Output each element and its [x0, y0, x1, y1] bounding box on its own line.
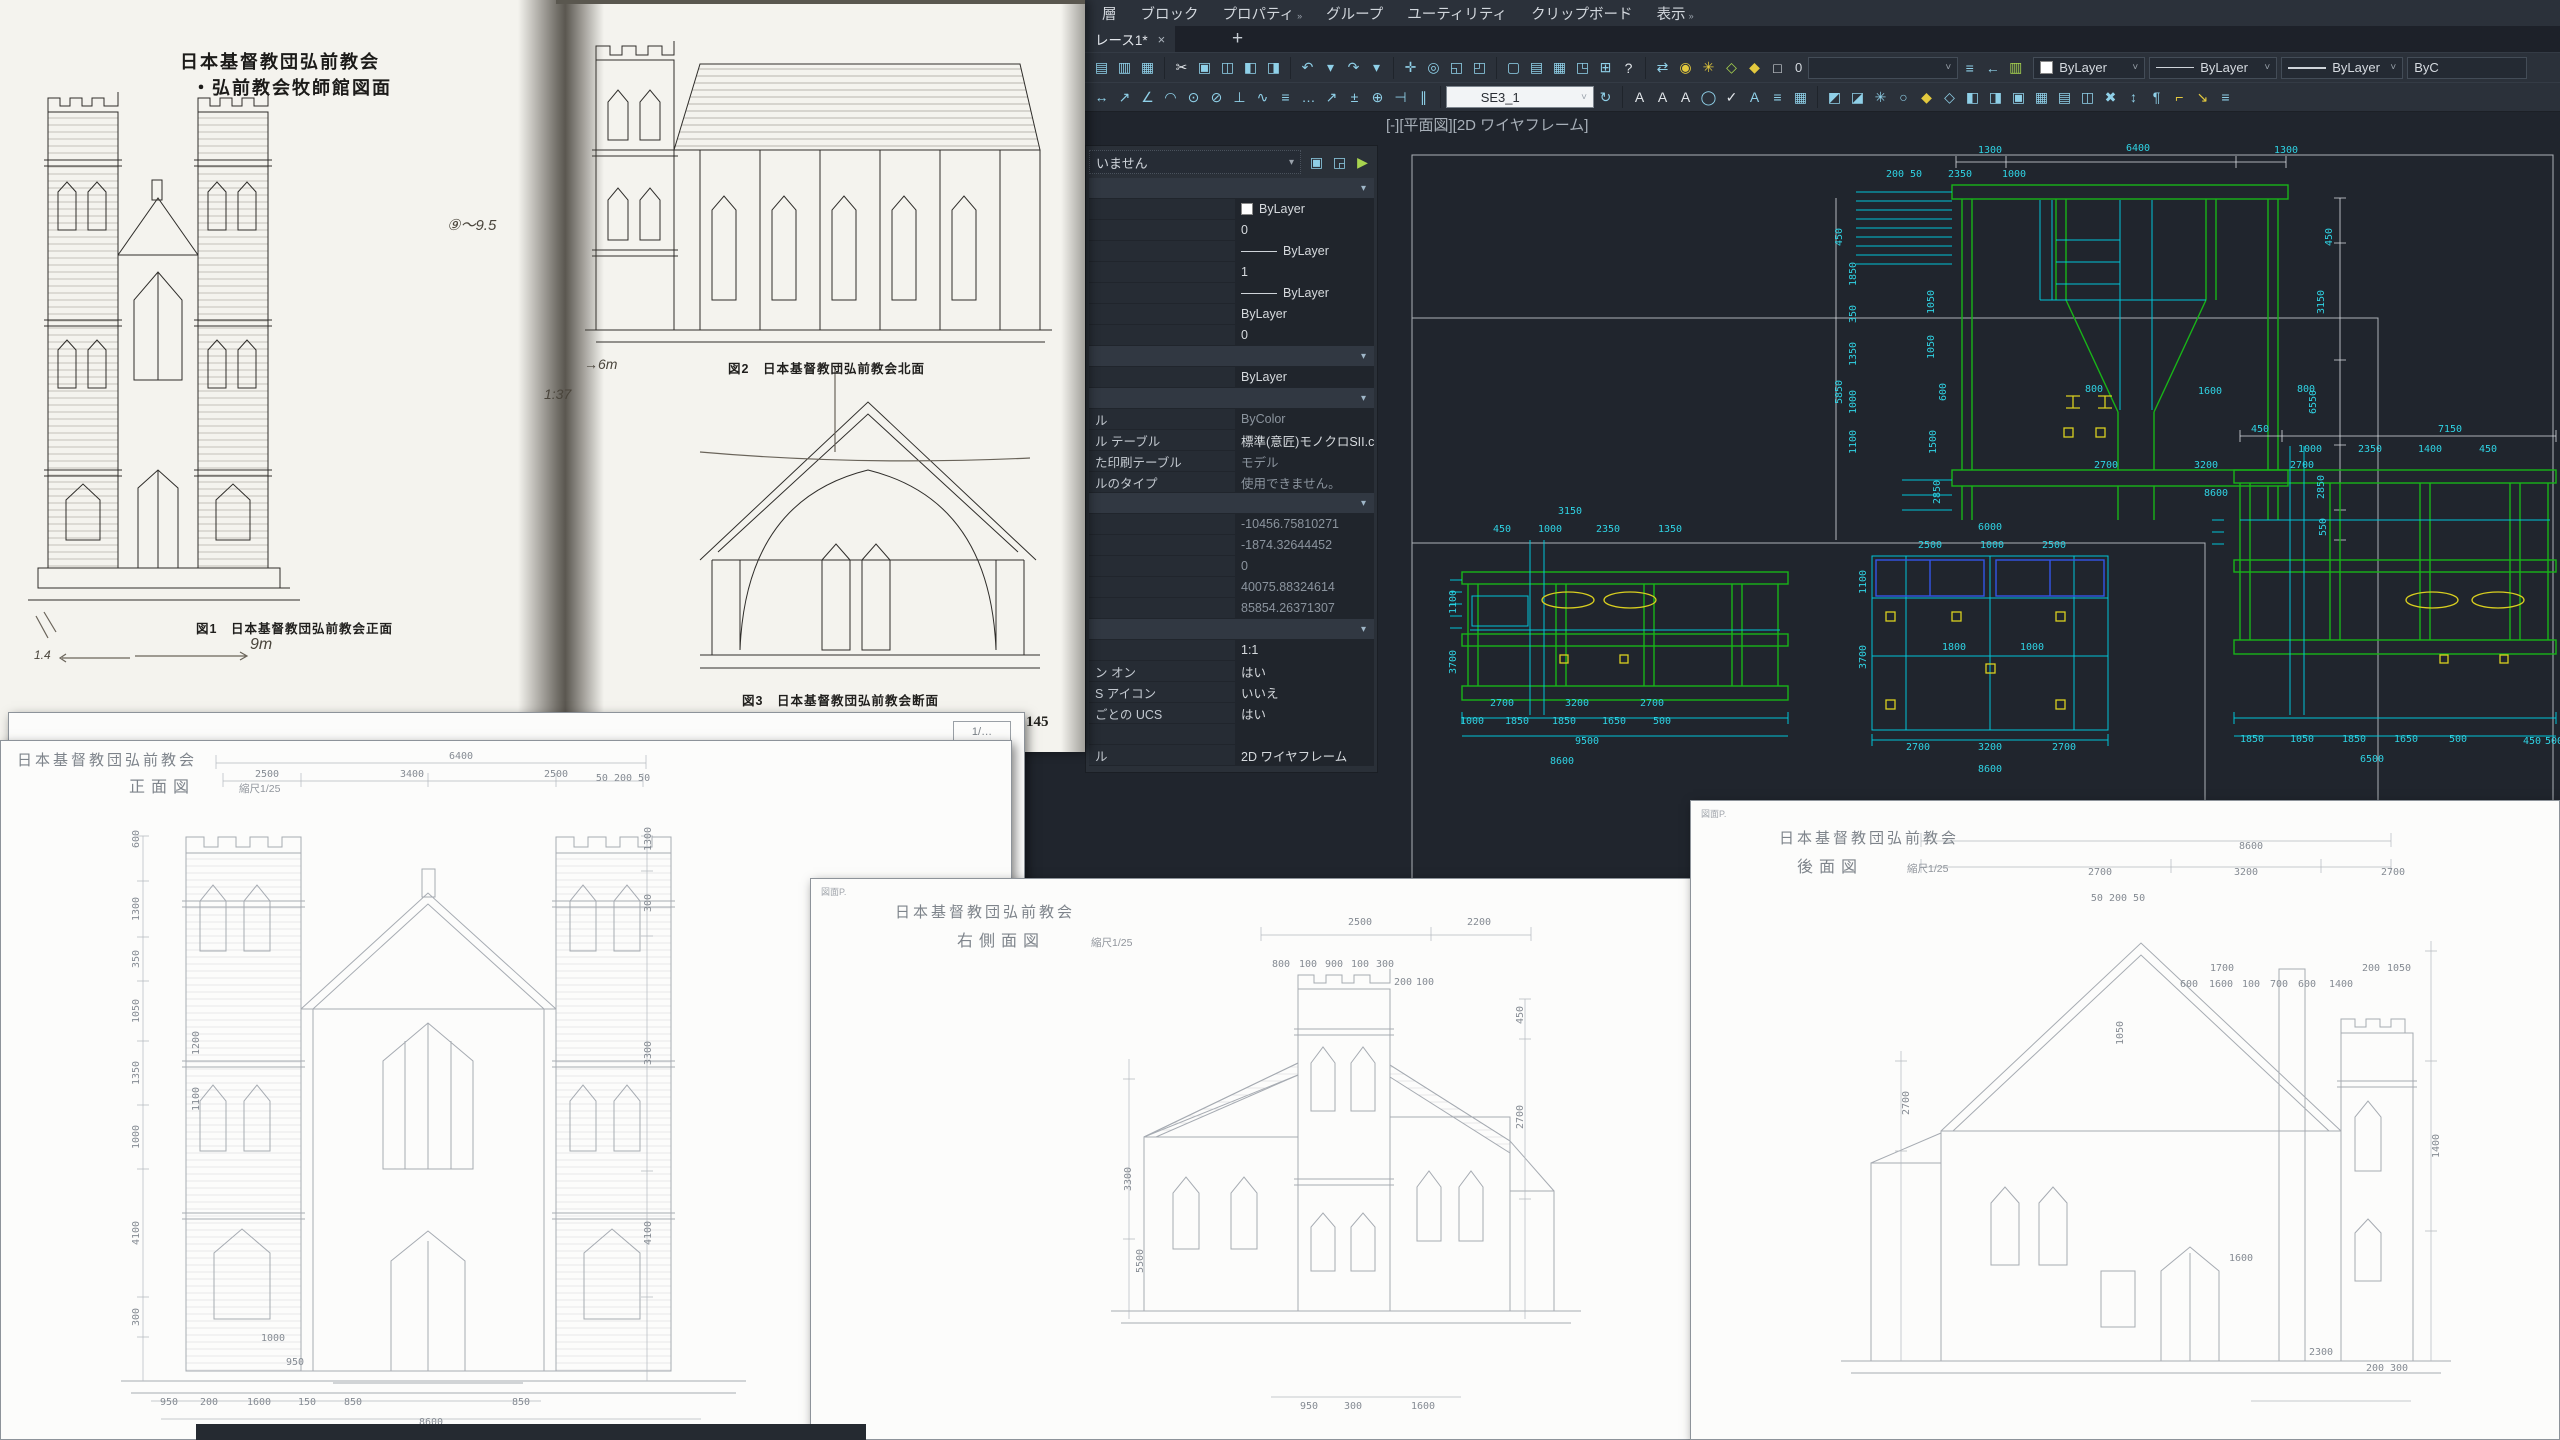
fig1-front-elevation: [28, 92, 300, 600]
dimension-text: 8600: [2239, 841, 2263, 852]
dimension-text: 3300: [643, 1041, 654, 1065]
dimension-text: 2350: [1596, 524, 1620, 535]
scanned-document-page: 日本基督教団弘前教会 ・弘前教会牧師館図面 図1 日本基督教団弘前教会正面 図2…: [0, 0, 1085, 752]
dimension-text: 2350: [1948, 169, 1972, 180]
dimension-text: 1400: [2418, 444, 2442, 455]
scan-title-line1: 日本基督教団弘前教会: [180, 48, 380, 74]
toggle-pickadd-icon[interactable]: ▶: [1351, 150, 1374, 174]
property-row[interactable]: ルByColor: [1089, 409, 1374, 430]
fig3-caption: 図3 日本基督教団弘前教会断面: [742, 690, 939, 709]
dimension-text: 4100: [643, 1221, 654, 1245]
dimension-text: 100: [2242, 979, 2260, 990]
dimension-text: 1000: [1848, 390, 1859, 414]
sheet-c-view-name: 後面図: [1797, 853, 1863, 877]
property-row[interactable]: ByLayer: [1089, 241, 1374, 262]
property-row[interactable]: 85854.26371307: [1089, 598, 1374, 619]
dimension-text: 1100: [1448, 590, 1459, 614]
handwritten-note: →6m: [584, 356, 617, 372]
dimension-text: 1300: [2274, 145, 2298, 156]
dimension-text: 2500: [544, 769, 568, 780]
dimension-text: 350: [131, 950, 142, 968]
dimension-text: 1000: [1980, 540, 2004, 551]
dimension-text: 50 200 50: [596, 773, 650, 784]
dimension-text: 200: [2362, 963, 2380, 974]
dimension-text: 300: [1376, 959, 1394, 970]
dimension-text: 4100: [131, 1221, 142, 1245]
handwritten-note: 1:37: [544, 386, 571, 402]
dimension-text: 2700: [2052, 742, 2076, 753]
dimension-text: 950: [286, 1357, 304, 1368]
properties-section-header[interactable]: ▾: [1089, 346, 1374, 367]
dimension-text: 2700: [2381, 867, 2405, 878]
dimension-text: 500: [2449, 734, 2467, 745]
plan-right-cyan: [2212, 446, 2556, 736]
sheet-b-scale: 縮尺1/25: [1091, 935, 1132, 950]
handwritten-note: 9m: [250, 636, 272, 654]
page-number: 145: [1026, 714, 1049, 731]
dimension-text: 2500: [255, 769, 279, 780]
properties-section-header[interactable]: ▾: [1089, 178, 1374, 199]
dimension-text: 950: [160, 1397, 178, 1408]
fig2-caption: 図2 日本基督教団弘前教会北面: [728, 358, 925, 377]
dimension-text: 550: [2318, 518, 2329, 536]
dimension-text: 200: [2366, 1363, 2384, 1374]
quick-select-icon[interactable]: ▣: [1305, 150, 1328, 174]
dimension-text: 2200: [1467, 917, 1491, 928]
properties-section-header[interactable]: ▾: [1089, 619, 1374, 640]
dimension-text: 1850: [1848, 262, 1859, 286]
dimension-text: 2700: [1640, 698, 1664, 709]
properties-section-header[interactable]: ▾: [1089, 388, 1374, 409]
dimension-text: 3150: [1558, 506, 1582, 517]
dimension-text: 2500: [1348, 917, 1372, 928]
dimension-text: 100: [1416, 977, 1434, 988]
dimension-text: 100: [1351, 959, 1369, 970]
dimension-text: 450: [1515, 1006, 1526, 1024]
dimension-text: 850: [344, 1397, 362, 1408]
dimension-text: 2700: [2290, 460, 2314, 471]
dimension-text: 3200: [2234, 867, 2258, 878]
sheet-b-view-name: 右側面図: [957, 927, 1045, 951]
sheet-a-view-name: 正面図: [129, 773, 195, 797]
dimension-text: 50 200 50: [2091, 893, 2145, 904]
dimension-text: 1850: [1552, 716, 1576, 727]
sheet-a-scale: 縮尺1/25: [239, 781, 280, 796]
dimension-text: 150: [298, 1397, 316, 1408]
dimension-text: 1500: [1928, 430, 1939, 454]
dimension-text: 2700: [1906, 742, 1930, 753]
dimension-text: 9500: [1575, 736, 1599, 747]
desktop: 層ブロックプロパティ»グループユーティリティクリップボード表示» レース1* ×…: [0, 0, 2560, 1440]
dimension-text: 1600: [2209, 979, 2233, 990]
plan-top-yellow: [2064, 396, 2112, 437]
property-row[interactable]: 1: [1089, 262, 1374, 283]
plan-mid-cyan: [1872, 556, 2108, 746]
dimension-text: 1600: [2229, 1253, 2253, 1264]
dimension-text: 3200: [1978, 742, 2002, 753]
dimension-text: 6500: [2360, 754, 2384, 765]
property-row[interactable]: 0: [1089, 556, 1374, 577]
dimension-text: 1000: [1538, 524, 1562, 535]
dimension-text: 450: [1834, 228, 1845, 246]
property-row[interactable]: ByLayer: [1089, 199, 1374, 220]
dimension-text: 850: [512, 1397, 530, 1408]
select-objects-icon[interactable]: ◲: [1328, 150, 1351, 174]
handwritten-note: 1.4: [34, 648, 51, 662]
dimension-text: 2850: [1932, 480, 1943, 504]
dimension-text: 1000: [2020, 642, 2044, 653]
dimension-text: 1000: [2002, 169, 2026, 180]
dimension-text: 600: [2298, 979, 2316, 990]
dimension-text: 1350: [131, 1061, 142, 1085]
dimension-text: 2850: [2316, 475, 2327, 499]
dimension-text: 1000: [1460, 716, 1484, 727]
dimension-text: 450: [2251, 424, 2269, 435]
dimension-text: 950: [1300, 1401, 1318, 1412]
property-row[interactable]: ByLayer: [1089, 304, 1374, 325]
dimension-text: 3700: [1858, 645, 1869, 669]
dimension-text: 1100: [1848, 430, 1859, 454]
dimension-text: 500: [1653, 716, 1671, 727]
property-row[interactable]: 40075.88324614: [1089, 577, 1374, 598]
dimension-text: 1800: [1942, 642, 1966, 653]
property-row[interactable]: ン オンはい: [1089, 661, 1374, 682]
dimension-text: 3700: [1448, 650, 1459, 674]
dimension-text: 600: [2180, 979, 2198, 990]
dimension-text: 2700: [2088, 867, 2112, 878]
dimension-text: 8600: [2204, 488, 2228, 499]
dimension-text: 100: [1299, 959, 1317, 970]
dimension-text: 3150: [2316, 290, 2327, 314]
plan-mid-yellow: [1886, 612, 2065, 709]
dimension-text: 1300: [1978, 145, 2002, 156]
dimension-text: 350: [1848, 305, 1859, 323]
sheet-b-title: 日本基督教団弘前教会: [895, 901, 1075, 922]
dimension-text: 1400: [2329, 979, 2353, 990]
dimension-text: 2500: [1918, 540, 1942, 551]
dimension-text: 1700: [2210, 963, 2234, 974]
cad-sheet-rear-elevation: 図面P. 日本基督教団弘前教会 後面図 縮尺1/25: [1690, 800, 2560, 1440]
sheet-b-drawing: 2500220080010090010030020010045027003300…: [811, 879, 1693, 1440]
dimension-text: 800: [2085, 384, 2103, 395]
dimension-text: 1650: [1602, 716, 1626, 727]
dimension-text: 2700: [1490, 698, 1514, 709]
sheet-c-corner-mark: 図面P.: [1701, 807, 1726, 820]
dimension-text: 500: [2545, 736, 2560, 747]
dimension-text: 300: [2390, 1363, 2408, 1374]
sheet-b-corner-mark: 図面P.: [821, 885, 846, 898]
dimension-text: 1050: [1926, 335, 1937, 359]
dimension-text: 900: [1325, 959, 1343, 970]
viewport-controls-label[interactable]: [-][平面図][2D ワイヤフレーム]: [1386, 114, 1588, 135]
dimension-text: 1000: [261, 1333, 285, 1344]
dimension-text: 1200: [191, 1031, 202, 1055]
dimension-text: 7150: [2438, 424, 2462, 435]
dimension-text: 8600: [1550, 756, 1574, 767]
dimension-text: 1300: [131, 897, 142, 921]
dimension-text: 2700: [1901, 1091, 1912, 1115]
dimension-text: 200: [1394, 977, 1412, 988]
sheet-c-title: 日本基督教団弘前教会: [1779, 827, 1959, 848]
dimension-text: 6400: [2126, 143, 2150, 154]
properties-palette: いません ▾ ▣◲▶ ▾ByLayer0ByLayer1ByLayerByLay…: [1085, 145, 1378, 773]
property-row[interactable]: た印刷テーブルモデル: [1089, 451, 1374, 472]
dimension-text: 3400: [400, 769, 424, 780]
dimension-text: 8600: [1978, 764, 2002, 775]
property-row[interactable]: ByLayer: [1089, 367, 1374, 388]
page-top-edge: [556, 0, 1085, 4]
fig3-cross-section: [700, 402, 1040, 668]
property-row[interactable]: 0: [1089, 220, 1374, 241]
dimension-text: 200 50: [1886, 169, 1922, 180]
dimension-text: 2500: [2042, 540, 2066, 551]
property-row[interactable]: 0: [1089, 325, 1374, 346]
property-row[interactable]: -10456.75810271: [1089, 514, 1374, 535]
dimension-text: 800: [1272, 959, 1290, 970]
dimension-text: 2700: [1515, 1105, 1526, 1129]
dimension-text: 300: [643, 894, 654, 912]
property-row[interactable]: ルのタイプ使用できません。: [1089, 472, 1374, 493]
plan-left-yellow: [1542, 592, 1656, 663]
dimension-text: 1850: [1505, 716, 1529, 727]
dimension-text: 1350: [1658, 524, 1682, 535]
dimension-text: 1100: [191, 1087, 202, 1111]
dimension-text: 300: [1344, 1401, 1362, 1412]
dimension-text: 3200: [2194, 460, 2218, 471]
property-row[interactable]: S アイコンいいえ: [1089, 682, 1374, 703]
sheet-c-drawing: 860027003200270050 200 50170060016001007…: [1691, 801, 2560, 1440]
cad-sheet-right-side-elevation: 図面P. 日本基督教団弘前教会 右側面図 縮尺1/25: [810, 878, 1692, 1440]
sheet-c-scale: 縮尺1/25: [1907, 861, 1948, 876]
dimension-text: 1300: [643, 827, 654, 851]
dimension-text: 1650: [2394, 734, 2418, 745]
dimension-text: 2300: [2309, 1347, 2333, 1358]
dimension-text: 700: [2270, 979, 2288, 990]
dimension-text: 6400: [449, 751, 473, 762]
dimension-text: 450: [2479, 444, 2497, 455]
selection-dropdown[interactable]: いません ▾: [1089, 150, 1301, 174]
dimension-text: 200: [200, 1397, 218, 1408]
dimension-text: 2350: [2358, 444, 2382, 455]
page-edge-shadow: [1061, 0, 1085, 752]
property-row[interactable]: -1874.32644452: [1089, 535, 1374, 556]
properties-section-header[interactable]: ▾: [1089, 493, 1374, 514]
taskbar-strip: [196, 1424, 866, 1440]
dimension-text: 450: [2523, 736, 2541, 747]
dimension-text: 1850: [2240, 734, 2264, 745]
dimension-text: 1100: [1858, 570, 1869, 594]
plan-right-yellow: [2406, 592, 2524, 663]
plan-right-white-dims: [2240, 430, 2556, 442]
property-row[interactable]: ル テーブル標準(意匠)モノクロSII.ctb: [1089, 430, 1374, 451]
selection-value: いません: [1096, 153, 1148, 172]
sheet-a-title: 日本基督教団弘前教会: [17, 749, 197, 770]
dimension-text: 1600: [2198, 386, 2222, 397]
dimension-text: 6000: [1978, 522, 2002, 533]
scan-title-line2: ・弘前教会牧師館図面: [192, 74, 392, 100]
dimension-text: 1000: [2298, 444, 2322, 455]
property-row[interactable]: [1089, 724, 1374, 745]
dimension-text: 1400: [2431, 1134, 2442, 1158]
property-row[interactable]: 1:1: [1089, 640, 1374, 661]
dimension-text: 600: [131, 830, 142, 848]
dimension-text: 1850: [2342, 734, 2366, 745]
dimension-text: 1000: [131, 1125, 142, 1149]
dimension-text: 3200: [1565, 698, 1589, 709]
dimension-text: 2700: [2094, 460, 2118, 471]
plan-left-green: [1462, 572, 1788, 700]
dimension-text: 1050: [131, 999, 142, 1023]
dimension-text: 1600: [1411, 1401, 1435, 1412]
dimension-text: 300: [131, 1308, 142, 1326]
dimension-text: 450: [1493, 524, 1511, 535]
dimension-text: 1050: [2115, 1021, 2126, 1045]
dimension-text: 5850: [1834, 380, 1845, 404]
dimension-text: 1050: [2387, 963, 2411, 974]
dimension-text: 600: [1938, 383, 1949, 401]
dimension-text: 1600: [247, 1397, 271, 1408]
dimension-text: 1050: [2290, 734, 2314, 745]
dimension-text: 3300: [1123, 1167, 1134, 1191]
dimension-text: 1350: [1848, 342, 1859, 366]
dimension-text: 450: [2324, 228, 2335, 246]
dimension-text: 800: [2297, 384, 2315, 395]
plan-right-green: [2234, 470, 2556, 654]
property-row[interactable]: ごとの UCSはい: [1089, 703, 1374, 724]
fig2-north-elevation: [585, 41, 1052, 342]
handwritten-note: ⑨〜9.5: [447, 214, 496, 235]
property-row[interactable]: ByLayer: [1089, 283, 1374, 304]
book-gutter-shadow: [518, 0, 604, 752]
dimension-text-layer: 130064001300200 502350100045018503501350…: [1448, 143, 2560, 775]
dimension-text: 5500: [1135, 1249, 1146, 1273]
property-row[interactable]: ル2D ワイヤフレーム: [1089, 745, 1374, 766]
fig1-caption: 図1 日本基督教団弘前教会正面: [196, 618, 393, 637]
dimension-text: 1050: [1926, 290, 1937, 314]
